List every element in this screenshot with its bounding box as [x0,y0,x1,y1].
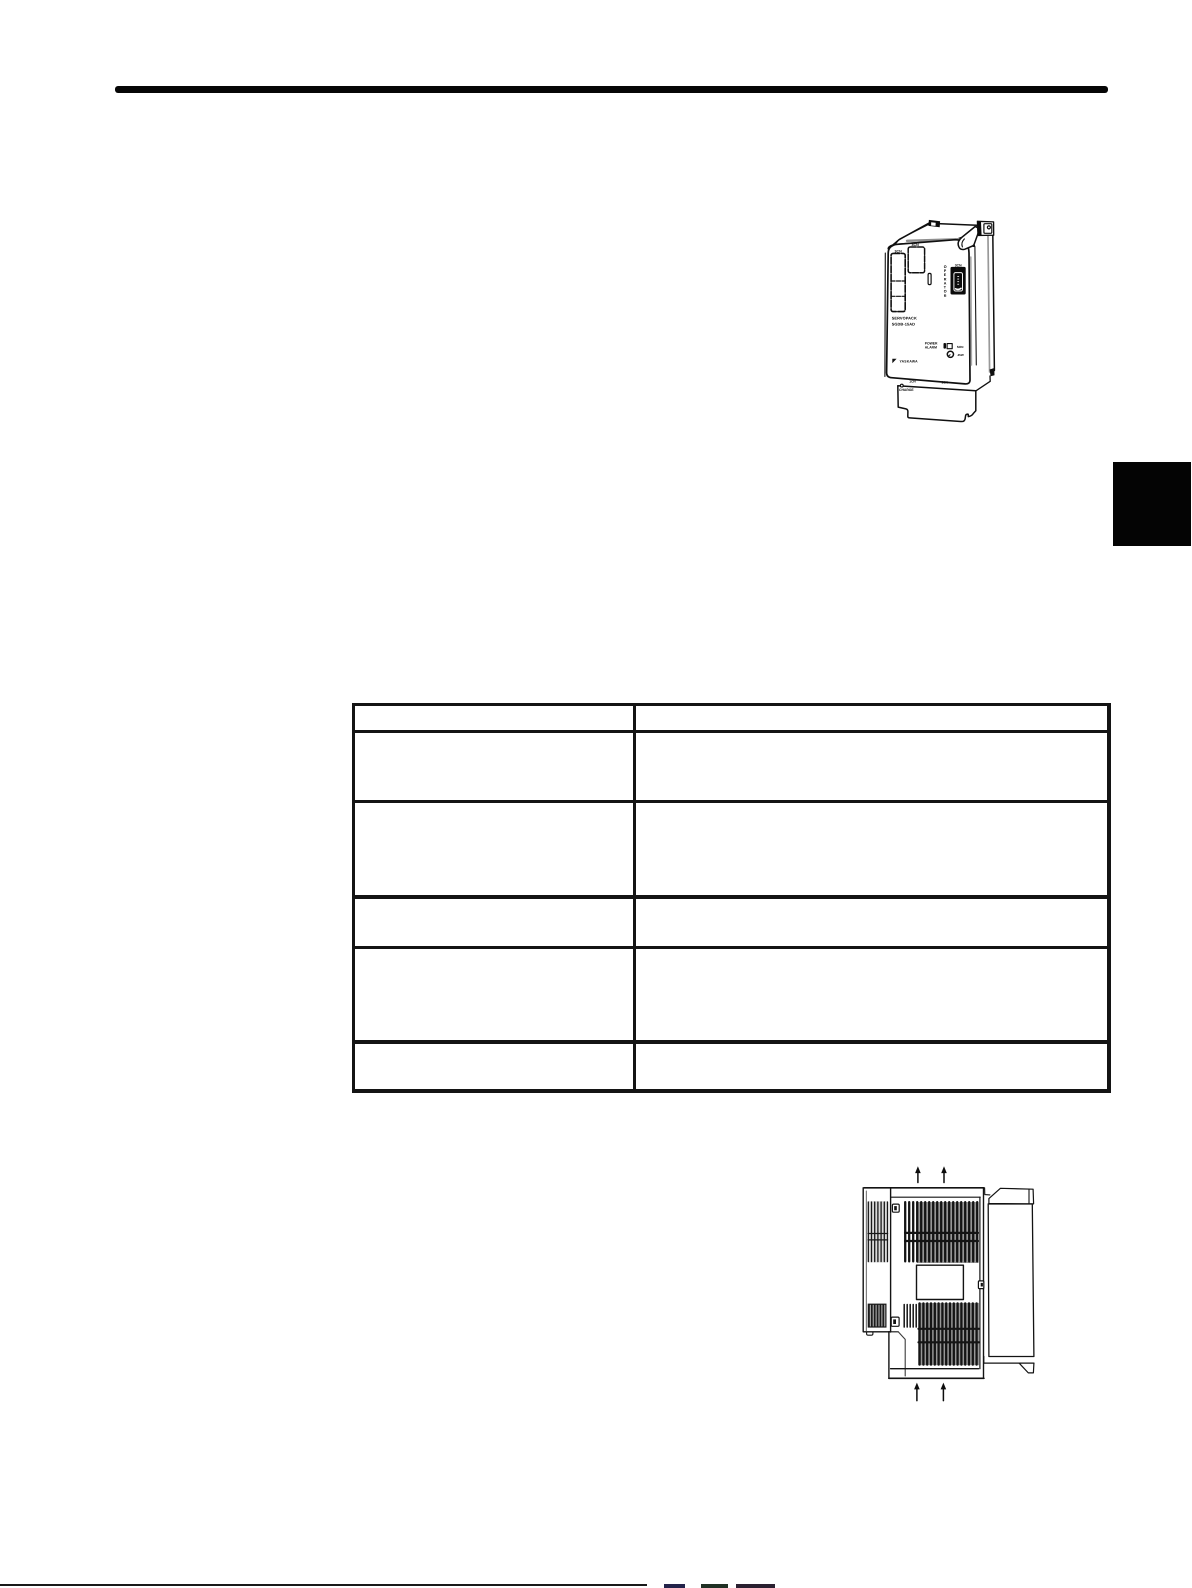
svg-text:45W: 45W [958,353,964,357]
svg-text:ALARM: ALARM [925,346,937,350]
svg-text:SON: SON [957,345,964,349]
svg-text:3CN: 3CN [955,263,962,267]
svg-text:1CN: 1CN [909,379,916,383]
svg-text:2CN: 2CN [942,381,949,385]
svg-text:R: R [944,294,947,298]
svg-text:SGDB-15AD: SGDB-15AD [892,322,915,327]
svg-text:4CN: 4CN [912,243,920,247]
svg-text:3CN: 3CN [895,249,903,253]
svg-text:CHARGE: CHARGE [899,388,914,392]
svg-text:YASKAWA: YASKAWA [900,360,919,364]
svg-text:SERVOPACK: SERVOPACK [892,316,917,321]
